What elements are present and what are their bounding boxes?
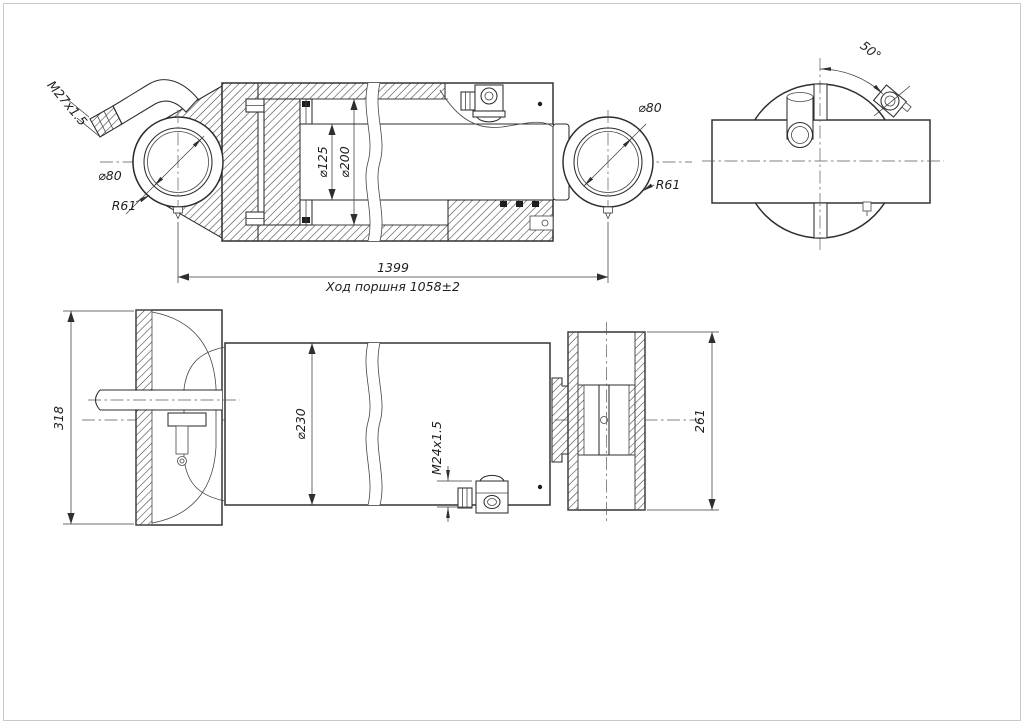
fitting-bore-icon [481, 88, 497, 104]
gland-retainer [530, 216, 553, 230]
dim-port-thread-bottom: M24x1.5 [429, 421, 444, 475]
mount-plate [88, 310, 240, 525]
dim-port-thread-left: M27x1.5 [44, 78, 90, 129]
tube-wall-top [258, 83, 445, 99]
piston [264, 99, 300, 225]
dim-eye-bore-right: ⌀80 [638, 100, 661, 115]
grease-nipple-left [174, 207, 183, 219]
dim-rod-eye-width: 261 [692, 409, 707, 433]
rod-head-side [552, 378, 568, 462]
dim-mount-width: 318 [51, 406, 66, 430]
side-view: 318 ⌀230 M24x1.5 [51, 310, 719, 525]
dim-rod-diameter: ⌀125 [315, 146, 330, 177]
dim-overall-length: 1399 [377, 260, 409, 275]
rod-eye-side [568, 322, 645, 522]
dim-bore-diameter: ⌀200 [337, 146, 352, 177]
gusset-bottom [814, 203, 827, 238]
eye-hub [712, 120, 930, 203]
grease-nipple-right [604, 207, 613, 219]
gusset-top [814, 84, 827, 120]
section-view: ⌀125 ⌀200 M27x1.5 ⌀80 [44, 78, 692, 294]
port-tube [787, 93, 813, 148]
dim-eye-radius-right: R61 [656, 177, 681, 192]
dim-body-diameter: ⌀230 [293, 408, 308, 439]
mount-pin [88, 390, 240, 410]
right-eye: ⌀80 R61 [563, 100, 680, 219]
center-mark-dot [538, 485, 542, 489]
dim-eye-radius-left: R61 [112, 198, 137, 213]
dim-eye-bore-left: ⌀80 [98, 168, 121, 183]
note-piston-stroke: Ход поршня 1058±2 [325, 279, 460, 294]
left-eye: M27x1.5 ⌀80 R61 [44, 78, 223, 238]
dim-port-angle: 50° [857, 38, 884, 63]
mount-width-dimension: 318 [51, 311, 134, 524]
tube-wall-bottom [258, 225, 448, 241]
center-mark-dot [538, 102, 542, 106]
end-view: 50° [702, 38, 944, 250]
cylinder-body: ⌀125 ⌀200 [222, 83, 569, 241]
technical-drawing: ⌀125 ⌀200 M27x1.5 ⌀80 [0, 0, 1024, 724]
rod-eye-width-dimension: 261 [647, 332, 719, 510]
drawing-sheet: ⌀125 ⌀200 M27x1.5 ⌀80 [0, 0, 1024, 724]
